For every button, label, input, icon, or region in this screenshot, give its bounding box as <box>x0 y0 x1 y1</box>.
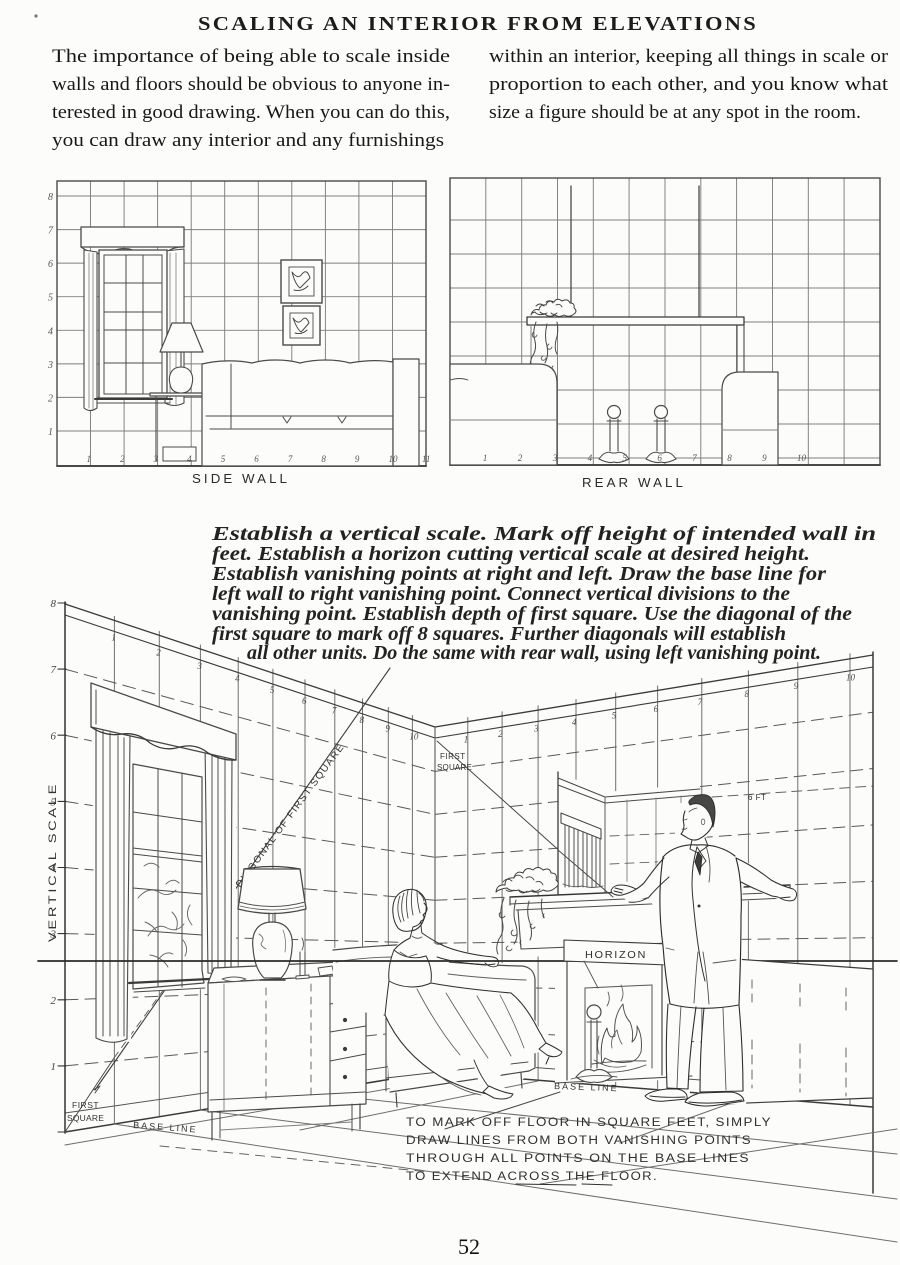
svg-text:2: 2 <box>518 453 523 463</box>
svg-text:3: 3 <box>47 360 53 371</box>
svg-text:4: 4 <box>48 326 53 337</box>
svg-text:1: 1 <box>464 735 469 745</box>
svg-text:SIDE WALL: SIDE WALL <box>192 471 290 486</box>
svg-text:8: 8 <box>727 453 732 463</box>
svg-text:4: 4 <box>235 674 240 684</box>
svg-text:7: 7 <box>698 697 703 707</box>
svg-text:THROUGH ALL POINTS ON THE BASE: THROUGH ALL POINTS ON THE BASE LINES <box>406 1153 750 1165</box>
svg-text:1: 1 <box>48 427 53 438</box>
svg-text:5: 5 <box>612 711 617 721</box>
svg-text:6: 6 <box>302 696 307 706</box>
svg-text:7: 7 <box>51 664 57 676</box>
svg-text:4: 4 <box>572 717 577 727</box>
svg-text:8: 8 <box>321 454 326 464</box>
svg-text:4: 4 <box>187 454 192 464</box>
svg-text:52: 52 <box>458 1234 480 1259</box>
svg-text:1: 1 <box>483 453 488 463</box>
svg-text:walls and floors should be obv: walls and floors should be obvious to an… <box>52 74 450 95</box>
svg-text:REAR WALL: REAR WALL <box>582 475 686 490</box>
svg-text:3: 3 <box>153 454 159 464</box>
svg-text:8: 8 <box>51 598 57 610</box>
svg-text:VERTICAL SCALE: VERTICAL SCALE <box>47 782 59 942</box>
svg-text:6: 6 <box>654 704 659 714</box>
svg-text:vanishing point. Establish dep: vanishing point. Establish depth of firs… <box>212 603 852 625</box>
svg-text:9: 9 <box>385 723 390 733</box>
svg-text:5: 5 <box>270 685 275 695</box>
svg-text:10: 10 <box>409 731 419 741</box>
svg-text:3: 3 <box>196 661 202 671</box>
svg-text:FIRST: FIRST <box>72 1100 99 1110</box>
svg-text:8: 8 <box>360 715 365 725</box>
svg-text:2: 2 <box>498 729 503 739</box>
svg-text:feet. Establish a horizon cutt: feet. Establish a horizon cutting vertic… <box>212 543 810 565</box>
svg-text:2: 2 <box>156 647 161 657</box>
svg-text:terested in good drawing. When: terested in good drawing. When you can d… <box>52 102 450 123</box>
svg-text:The importance of being able t: The importance of being able to scale in… <box>52 46 450 67</box>
svg-text:you can draw any interior and: you can draw any interior and any furnis… <box>52 130 444 151</box>
svg-text:10: 10 <box>797 453 807 463</box>
svg-text:DRAW LINES FROM BOTH VANISHING: DRAW LINES FROM BOTH VANISHING POINTS <box>406 1135 752 1147</box>
svg-text:all other units. Do the same w: all other units. Do the same with rear w… <box>247 642 821 664</box>
svg-text:TO EXTEND ACROSS THE FLOOR.: TO EXTEND ACROSS THE FLOOR. <box>406 1171 658 1183</box>
svg-text:HORIZON: HORIZON <box>585 950 647 961</box>
svg-text:FIRST: FIRST <box>440 752 466 761</box>
svg-text:11: 11 <box>422 454 430 464</box>
svg-text:2: 2 <box>48 393 53 404</box>
svg-text:Establish vanishing points at: Establish vanishing points at right and … <box>211 563 826 585</box>
svg-text:3: 3 <box>533 723 539 733</box>
svg-text:6: 6 <box>51 730 57 742</box>
svg-text:5: 5 <box>623 453 628 463</box>
svg-text:2: 2 <box>51 995 57 1007</box>
svg-text:SQUARE: SQUARE <box>437 763 472 772</box>
svg-text:2: 2 <box>120 454 125 464</box>
svg-text:10: 10 <box>388 454 398 464</box>
svg-text:TO MARK OFF FLOOR IN SQUARE FE: TO MARK OFF FLOOR IN SQUARE FEET, SIMPLY <box>406 1117 772 1129</box>
svg-text:8: 8 <box>744 689 749 699</box>
svg-text:5: 5 <box>221 454 226 464</box>
svg-text:7: 7 <box>692 453 697 463</box>
svg-text:7: 7 <box>288 454 293 464</box>
svg-text:proportion to each other, and: proportion to each other, and you know w… <box>489 74 889 95</box>
svg-text:9: 9 <box>794 681 799 691</box>
svg-text:6: 6 <box>254 454 259 464</box>
svg-text:1: 1 <box>111 632 116 642</box>
svg-text:8: 8 <box>48 192 53 203</box>
svg-text:4: 4 <box>588 453 593 463</box>
svg-text:1: 1 <box>87 454 92 464</box>
svg-text:SQUARE: SQUARE <box>67 1113 104 1123</box>
svg-text:SCALING AN INTERIOR FROM ELEVA: SCALING AN INTERIOR FROM ELEVATIONS <box>198 13 758 35</box>
svg-text:size a figure should be at any: size a figure should be at any spot in t… <box>489 102 861 123</box>
svg-text:3: 3 <box>552 453 558 463</box>
svg-text:left wall to right vanishing p: left wall to right vanishing point. Conn… <box>212 583 790 605</box>
svg-text:Establish a vertical scale. M: Establish a vertical scale. Mark off hei… <box>211 523 876 545</box>
svg-text:5: 5 <box>48 293 53 304</box>
svg-text:1: 1 <box>51 1061 57 1073</box>
svg-text:6: 6 <box>657 453 662 463</box>
svg-text:7: 7 <box>332 706 337 716</box>
svg-text:9: 9 <box>762 453 767 463</box>
svg-text:within an interior, keeping al: within an interior, keeping all things i… <box>489 46 889 67</box>
svg-text:6 FT: 6 FT <box>748 793 766 802</box>
svg-text:9: 9 <box>355 454 360 464</box>
svg-text:10: 10 <box>846 673 856 683</box>
svg-text:6: 6 <box>48 259 53 270</box>
